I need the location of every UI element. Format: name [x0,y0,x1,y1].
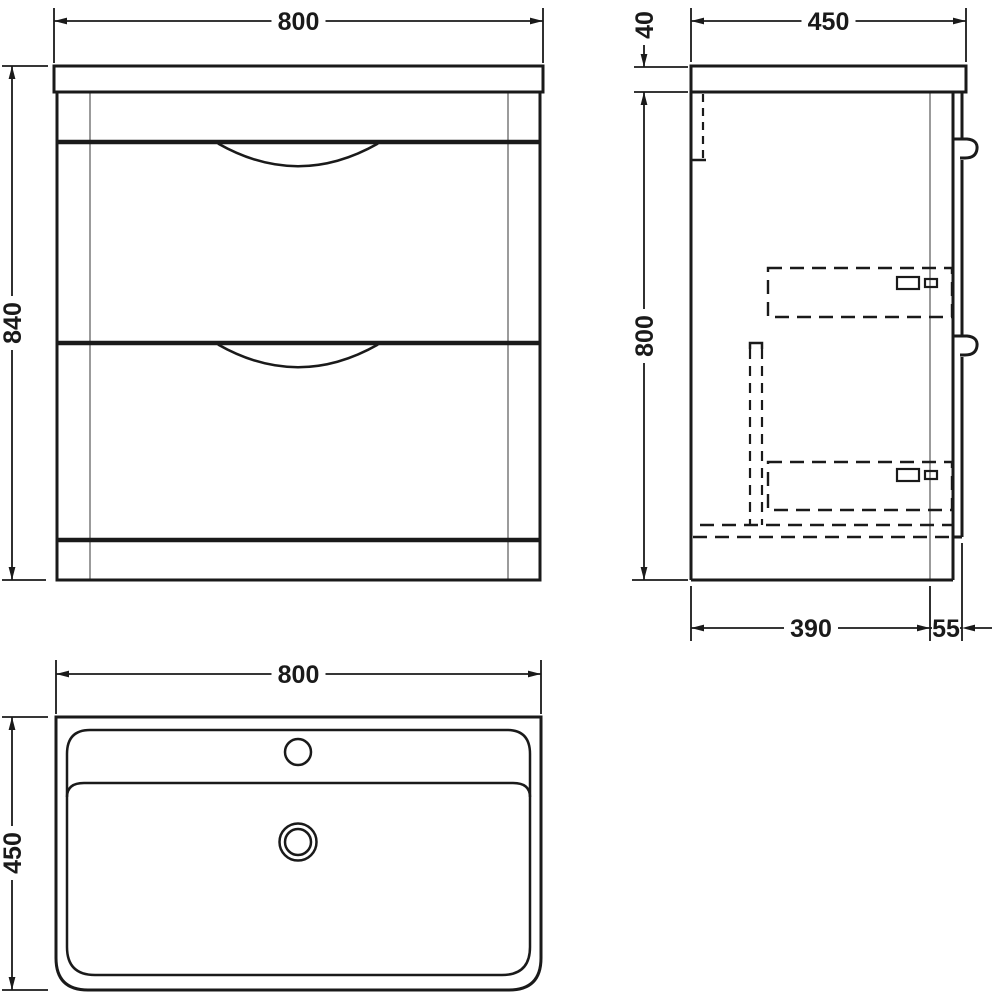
front-handle-recess-1 [218,144,378,167]
front-worktop [54,66,543,92]
arrowhead-left [691,625,704,632]
side-drawer-runner-2a [897,469,919,481]
side-height-label: 800 [631,315,659,357]
side-drawer-runner-1a [897,277,919,289]
technical-drawing: 800 840 [0,0,1000,1000]
front-dim-height: 840 [0,66,48,580]
side-waste-pipe-cap [750,343,762,349]
side-hidden-drawerbox-2 [768,462,952,510]
arrowhead-left [691,18,704,25]
drawing-canvas: 800 840 [0,0,1000,1000]
plan-width-label: 800 [278,661,320,689]
tap-hole [285,739,311,765]
front-handle-recess-2 [218,345,378,368]
arrowhead-right [953,18,966,25]
arrowhead-left [56,671,69,678]
front-dim-width: 800 [54,8,543,63]
arrowhead-bottom [9,567,16,580]
plan-depth-label: 450 [0,832,27,874]
arrowhead-right [528,671,541,678]
arrowhead-right [530,18,543,25]
side-front-offset-label: 55 [932,615,960,643]
arrowhead-right [917,625,930,632]
arrowhead-bottom [9,977,16,990]
arrowhead-top [9,66,16,79]
side-top-thickness-label: 40 [631,11,659,39]
side-handle-profile-2 [953,336,977,355]
front-width-label: 800 [278,8,320,36]
front-height-label-group: 840 [0,296,27,350]
plan-depth-label-group: 450 [0,826,27,880]
side-dim-top-thickness: 40 [631,5,688,105]
side-depth-label: 450 [808,8,850,36]
arrowhead-outside [962,625,975,632]
side-dim-depth: 450 [691,8,966,62]
front-height-label: 840 [0,302,27,344]
basin-inner-rim [67,730,530,975]
arrowhead-bottom [641,567,648,580]
side-handle-profile-1 [953,139,977,158]
basin-ledge-line [67,783,530,797]
side-top-thickness-label-group: 40 [631,5,659,45]
arrowhead-left [54,18,67,25]
side-dim-height: 800 [631,92,688,580]
plan-view [56,717,541,990]
arrowhead-down [641,54,648,67]
plan-dim-width: 800 [56,660,541,714]
side-view [691,66,977,580]
side-dim-bottom: 390 55 [691,543,992,643]
arrowhead-top [9,717,16,730]
plan-dim-depth: 450 [0,717,48,990]
side-hidden-drawerbox-1 [768,268,952,317]
side-worktop [691,66,966,92]
waste-outlet-inner [285,829,311,855]
front-view [54,66,543,580]
side-height-label-group: 800 [631,309,659,363]
side-base-depth-label: 390 [790,615,832,643]
basin-outer-outline [56,717,541,990]
